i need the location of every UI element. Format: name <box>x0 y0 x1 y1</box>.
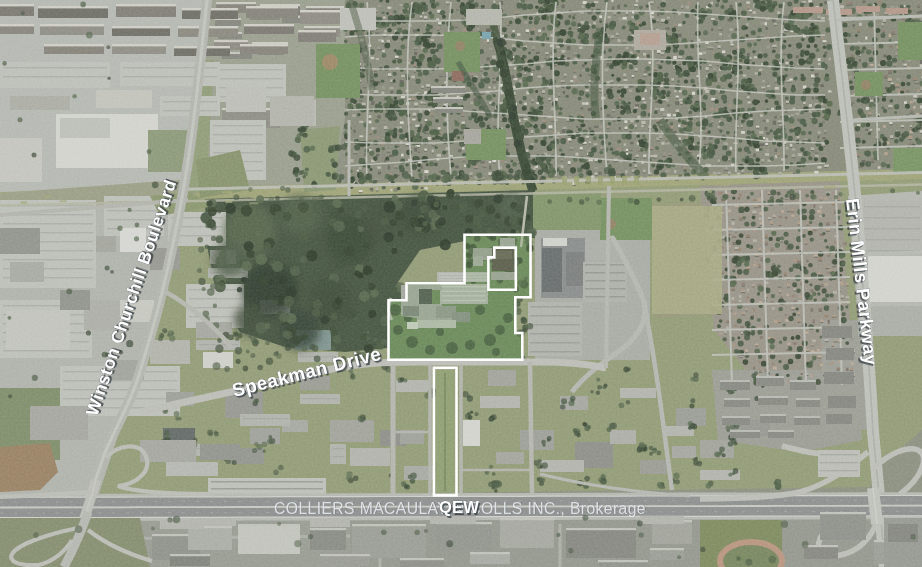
svg-text:QEW: QEW <box>439 498 479 516</box>
